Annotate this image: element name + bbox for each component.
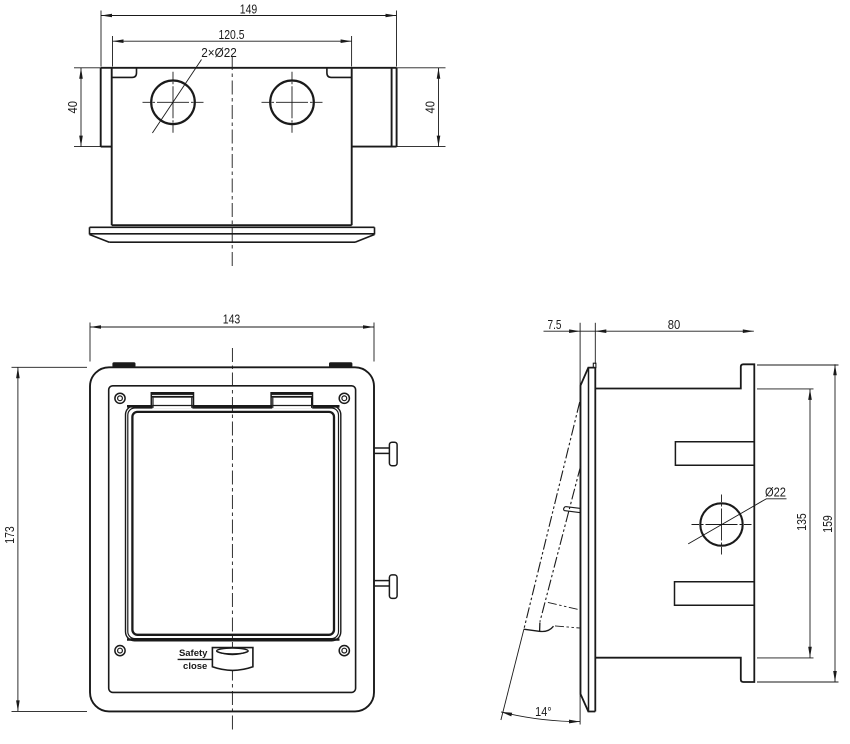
svg-text:Ø22: Ø22 <box>765 486 786 500</box>
svg-text:14°: 14° <box>535 705 552 719</box>
svg-text:40: 40 <box>66 101 80 114</box>
svg-text:149: 149 <box>240 2 258 16</box>
svg-text:40: 40 <box>423 101 437 114</box>
svg-text:120.5: 120.5 <box>219 28 245 42</box>
svg-text:143: 143 <box>223 312 241 326</box>
svg-text:2×Ø22: 2×Ø22 <box>201 46 237 60</box>
svg-text:173: 173 <box>3 526 17 544</box>
svg-text:159: 159 <box>821 515 835 533</box>
svg-text:7.5: 7.5 <box>548 318 562 332</box>
svg-text:Safety: Safety <box>179 648 208 659</box>
svg-text:80: 80 <box>668 318 681 332</box>
svg-text:135: 135 <box>795 513 809 531</box>
svg-text:close: close <box>183 661 207 672</box>
